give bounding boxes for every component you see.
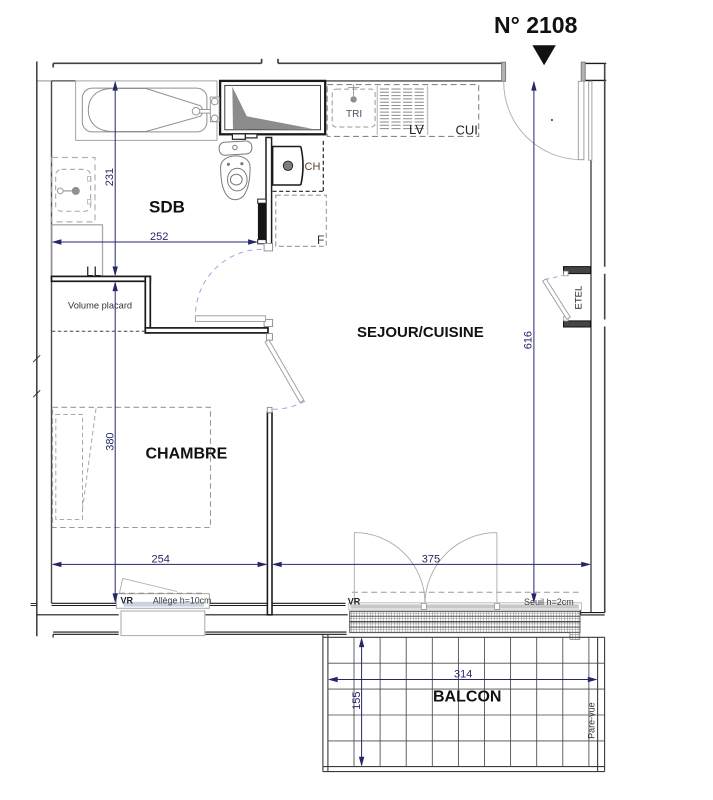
svg-text:231: 231 bbox=[104, 168, 116, 186]
svg-text:Seuil h=2cm: Seuil h=2cm bbox=[524, 597, 574, 607]
svg-text:LV: LV bbox=[409, 122, 424, 137]
svg-text:BALCON: BALCON bbox=[433, 689, 501, 706]
svg-text:CH: CH bbox=[305, 161, 321, 173]
svg-text:SEJOUR/CUISINE: SEJOUR/CUISINE bbox=[357, 324, 484, 341]
svg-text:155: 155 bbox=[351, 692, 363, 710]
svg-text:616: 616 bbox=[522, 331, 534, 349]
svg-text:380: 380 bbox=[105, 432, 117, 450]
svg-text:254: 254 bbox=[152, 553, 170, 565]
svg-text:N° 2108: N° 2108 bbox=[494, 12, 578, 38]
svg-text:TRI: TRI bbox=[346, 109, 362, 120]
svg-text:ETEL: ETEL bbox=[574, 286, 585, 310]
svg-text:VR: VR bbox=[348, 597, 361, 607]
svg-text:Volume placard: Volume placard bbox=[68, 301, 132, 311]
svg-text:SDB: SDB bbox=[149, 198, 185, 217]
svg-text:375: 375 bbox=[422, 553, 440, 565]
svg-text:CHAMBRE: CHAMBRE bbox=[146, 446, 228, 463]
svg-text:Allège h=10cm: Allège h=10cm bbox=[153, 596, 211, 606]
svg-text:F: F bbox=[317, 233, 324, 247]
svg-text:Pare-vue: Pare-vue bbox=[587, 702, 597, 739]
svg-text:252: 252 bbox=[150, 231, 168, 243]
svg-text:314: 314 bbox=[454, 668, 472, 680]
svg-text:VR: VR bbox=[121, 596, 134, 606]
svg-text:CUI: CUI bbox=[456, 123, 478, 138]
